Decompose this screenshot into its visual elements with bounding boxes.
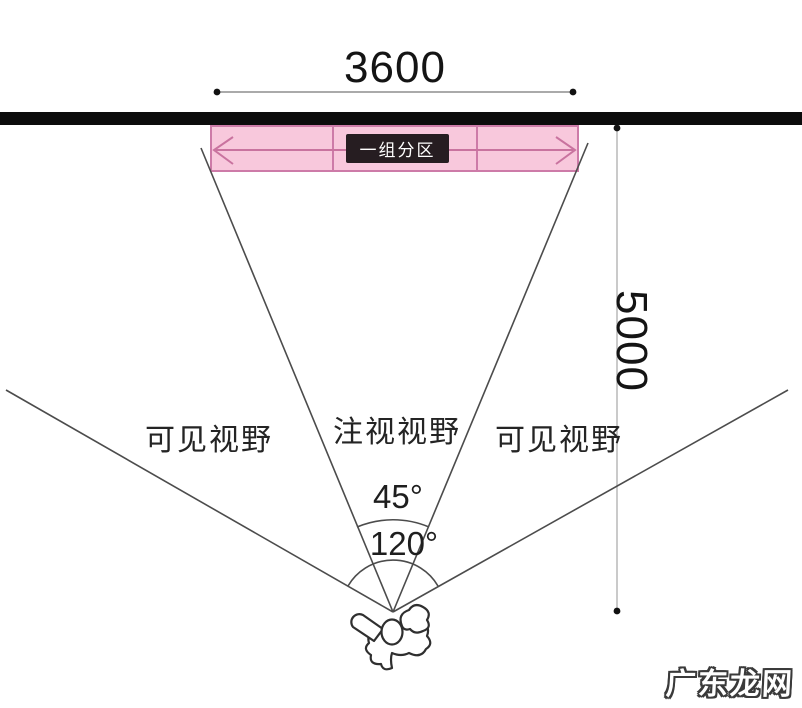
top-dimension-label: 3600 — [344, 43, 446, 93]
top-dimension-endpoint-left — [214, 89, 221, 96]
diagram-linework — [0, 0, 802, 708]
person-top-view-icon — [351, 605, 430, 669]
zone-label: 一组分区 — [360, 136, 436, 161]
gaze-angle-label: 45° — [373, 478, 423, 516]
visible-field-label-left: 可见视野 — [145, 415, 273, 459]
visible-angle-label: 120° — [370, 525, 438, 563]
person-right-arm — [401, 605, 429, 633]
right-dimension-label: 5000 — [606, 290, 656, 392]
viewing-angle-diagram: 3600 5000 一组分区 可见视野 注视视野 可见视野 45° 120° 广… — [0, 0, 802, 708]
watermark: 广东龙网 — [665, 659, 795, 703]
top-dimension-endpoint-right — [570, 89, 577, 96]
right-dimension-endpoint-top — [614, 125, 621, 132]
gaze-field-label: 注视视野 — [333, 407, 461, 451]
visible-angle-arc — [348, 560, 438, 586]
visible-field-label-right: 可见视野 — [495, 415, 623, 459]
zone-label-badge: 一组分区 — [346, 134, 449, 163]
gaze-cone-line-left — [201, 148, 393, 612]
person-head — [382, 620, 403, 645]
wall-line — [0, 112, 802, 125]
right-dimension-endpoint-bottom — [614, 608, 621, 615]
person-left-arm — [351, 614, 383, 641]
